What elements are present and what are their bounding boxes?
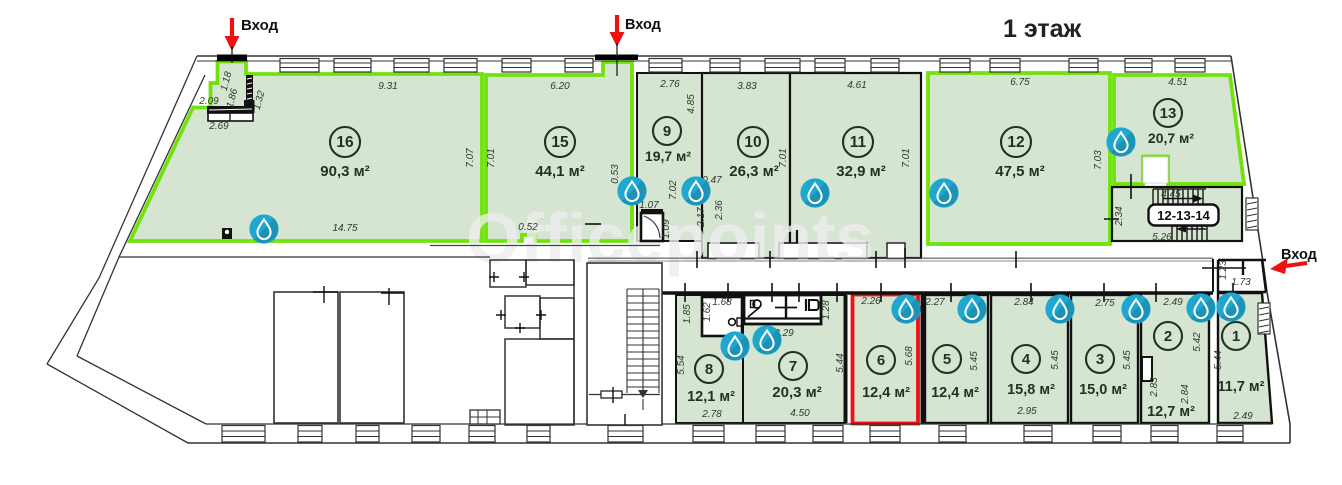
svg-text:5.45: 5.45	[969, 351, 980, 371]
svg-text:2.49: 2.49	[1232, 411, 1253, 422]
svg-text:8: 8	[705, 361, 713, 378]
svg-text:90,3 м²: 90,3 м²	[320, 163, 369, 180]
svg-text:1: 1	[1232, 328, 1240, 345]
svg-text:20,3 м²: 20,3 м²	[772, 384, 821, 401]
svg-text:2.17: 2.17	[696, 207, 707, 228]
svg-text:7: 7	[789, 358, 797, 375]
svg-text:1.62: 1.62	[702, 302, 713, 322]
svg-text:20,7 м²: 20,7 м²	[1148, 130, 1194, 146]
svg-text:9: 9	[663, 123, 671, 140]
svg-text:32,9 м²: 32,9 м²	[836, 163, 885, 180]
svg-text:5.68: 5.68	[904, 346, 915, 366]
svg-text:2.26: 2.26	[860, 296, 881, 307]
svg-text:4.45: 4.45	[1161, 189, 1181, 200]
svg-text:5.54: 5.54	[676, 355, 687, 375]
svg-text:7.07: 7.07	[465, 148, 476, 168]
svg-text:7.01: 7.01	[901, 148, 912, 167]
svg-text:13: 13	[1160, 105, 1177, 122]
svg-text:3.83: 3.83	[737, 81, 757, 92]
svg-text:4: 4	[1022, 351, 1031, 368]
svg-text:9.31: 9.31	[378, 81, 397, 92]
svg-text:14.75: 14.75	[332, 223, 357, 234]
svg-text:1.07: 1.07	[639, 200, 659, 211]
svg-text:2.27: 2.27	[924, 297, 945, 308]
svg-text:6.75: 6.75	[1010, 77, 1030, 88]
svg-text:12,1 м²: 12,1 м²	[687, 389, 735, 405]
svg-text:1.09: 1.09	[661, 219, 672, 239]
svg-text:15: 15	[551, 134, 569, 151]
svg-text:2.34: 2.34	[1114, 206, 1125, 227]
svg-text:12,7 м²: 12,7 м²	[1147, 404, 1195, 420]
svg-text:5.44: 5.44	[1213, 350, 1224, 370]
svg-text:Вход: Вход	[241, 17, 279, 34]
svg-text:47,5 м²: 47,5 м²	[995, 163, 1044, 180]
svg-text:2.83: 2.83	[1149, 377, 1160, 398]
svg-text:2.36: 2.36	[714, 200, 725, 221]
svg-text:0.53: 0.53	[610, 164, 621, 184]
svg-text:15,0 м²: 15,0 м²	[1079, 382, 1127, 398]
svg-text:2.76: 2.76	[659, 79, 680, 90]
svg-text:2.84: 2.84	[1013, 297, 1034, 308]
svg-text:26,3 м²: 26,3 м²	[729, 163, 778, 180]
svg-text:7.02: 7.02	[668, 180, 679, 200]
svg-text:0.52: 0.52	[518, 222, 538, 233]
svg-text:1.23: 1.23	[1218, 260, 1229, 280]
svg-text:4.50: 4.50	[790, 408, 810, 419]
svg-text:2.75: 2.75	[1094, 298, 1115, 309]
svg-text:4.61: 4.61	[847, 80, 866, 91]
svg-text:2: 2	[1164, 328, 1172, 345]
svg-text:44,1 м²: 44,1 м²	[535, 163, 584, 180]
svg-text:5.26: 5.26	[1152, 232, 1172, 243]
svg-text:7.01: 7.01	[486, 148, 497, 167]
svg-text:1 этаж: 1 этаж	[1003, 15, 1081, 43]
svg-text:5.45: 5.45	[1122, 350, 1133, 370]
svg-text:6.20: 6.20	[550, 81, 570, 92]
svg-text:19,7 м²: 19,7 м²	[645, 148, 691, 164]
svg-text:16: 16	[336, 134, 354, 151]
svg-text:Вход: Вход	[625, 17, 661, 33]
svg-text:10: 10	[744, 134, 761, 151]
svg-text:5.42: 5.42	[1192, 332, 1203, 352]
svg-text:5.44: 5.44	[835, 353, 846, 373]
svg-text:2.49: 2.49	[1162, 297, 1183, 308]
svg-text:2.69: 2.69	[208, 121, 229, 132]
svg-text:7.03: 7.03	[1093, 150, 1104, 170]
svg-text:15,8 м²: 15,8 м²	[1007, 382, 1055, 398]
svg-text:1.28: 1.28	[821, 300, 832, 320]
svg-text:2.78: 2.78	[701, 409, 722, 420]
svg-text:2.95: 2.95	[1016, 406, 1037, 417]
svg-text:2.84: 2.84	[1180, 384, 1191, 405]
svg-text:3: 3	[1096, 351, 1104, 368]
svg-text:11,7 м²: 11,7 м²	[1217, 379, 1264, 395]
svg-text:12,4 м²: 12,4 м²	[862, 385, 910, 401]
svg-text:4.85: 4.85	[686, 94, 697, 114]
svg-text:2.09: 2.09	[198, 96, 219, 107]
svg-text:11: 11	[850, 134, 867, 151]
svg-text:6: 6	[877, 352, 885, 369]
svg-text:5.45: 5.45	[1050, 350, 1061, 370]
svg-text:12: 12	[1007, 134, 1024, 151]
svg-text:7.01: 7.01	[778, 148, 789, 167]
svg-text:1.73: 1.73	[1231, 277, 1251, 288]
svg-text:1.68: 1.68	[712, 297, 732, 308]
svg-text:12,4 м²: 12,4 м²	[931, 385, 979, 401]
svg-text:Вход: Вход	[1281, 247, 1317, 263]
svg-text:1.85: 1.85	[682, 304, 693, 324]
svg-text:4.51: 4.51	[1168, 77, 1187, 88]
svg-text:5: 5	[943, 351, 951, 368]
svg-text:12-13-14: 12-13-14	[1157, 208, 1210, 223]
